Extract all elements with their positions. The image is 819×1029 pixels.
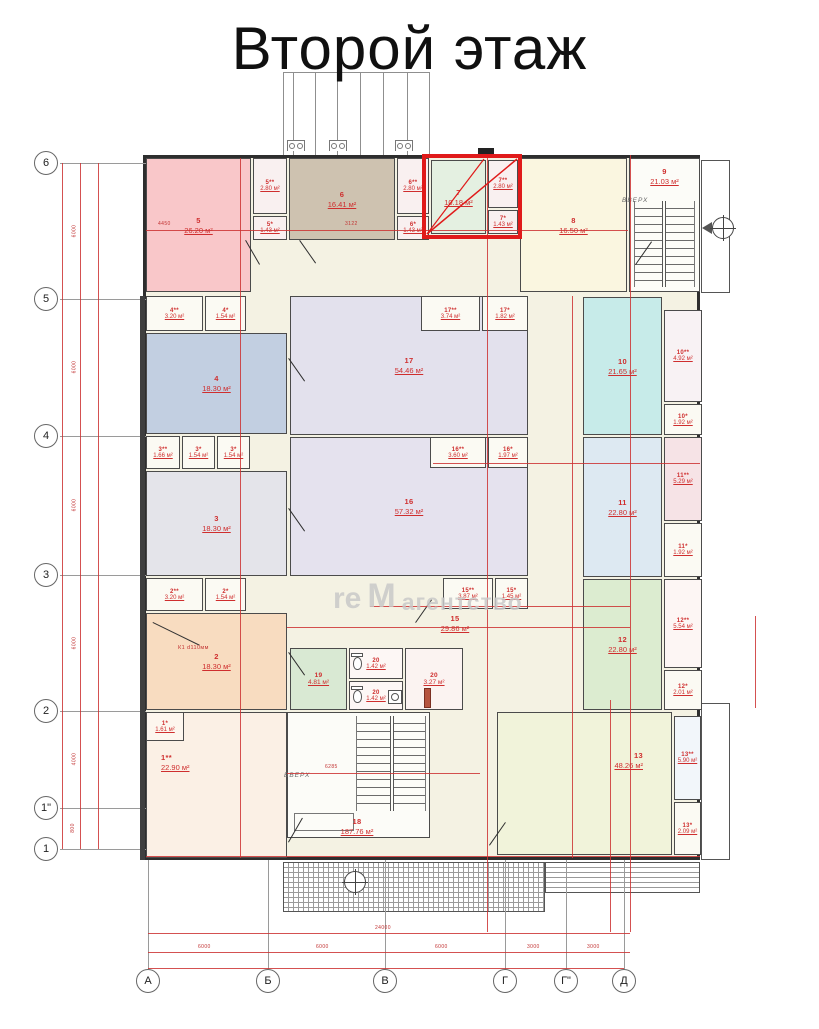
stair-stringer [662,201,666,287]
room-number: 18 [353,817,362,826]
room-area: 1.92 м² [673,420,692,426]
axis-label: 4 [43,430,49,442]
dimension-line [287,773,480,774]
dimension-label: 6000 [71,499,77,512]
dimension-line [755,616,756,708]
room-number: 10 [618,357,627,366]
axis-guide [60,711,146,712]
axis-label: 1" [41,802,51,814]
dimension-line [148,933,630,934]
dimension-line [610,700,611,932]
room-13: 1348.26 м² [497,712,672,855]
pipe-annotation: К1 d110мм [178,645,209,651]
room-area: 1.97 м² [498,453,517,459]
axis-label: Г [502,975,508,987]
dimension-line [146,230,628,231]
axis-circle-v: В [373,969,397,993]
dimension-label: 24000 [375,925,391,931]
room-10: 1021.65 м² [583,297,662,435]
room-number: 1** [161,753,172,762]
room-3s1b: 3*1.54 м² [217,436,250,469]
dimension-label: 4450 [158,221,171,227]
room-area: 3.74 м² [441,314,460,320]
room-area: 57.32 м² [395,507,424,516]
axis-label: 6 [43,157,49,169]
dimension-line [146,856,700,857]
toilet-tank-icon [351,653,363,657]
dimension-line [240,158,241,858]
room-area: 1.54 м² [189,453,208,459]
room-12s1: 12*2.01 м² [664,670,702,710]
room-area: 3.60 м² [448,453,467,459]
toilet-icon [353,657,362,670]
axis-label: 2 [43,705,49,717]
dimension-line [433,463,700,464]
axis-circle-g2: Г" [554,969,578,993]
axis-label: А [144,975,151,987]
room-2s2: 2**3.20 м² [146,578,203,611]
room-18-label: 18187.76 м² [312,810,402,842]
dimension-label: 4000 [71,753,77,766]
axis-guide [60,849,146,850]
room-area: 1.61 м² [155,727,174,733]
dimension-line [62,163,63,849]
dimension-label: 3000 [527,944,540,950]
room-area: 1.82 м² [495,314,514,320]
axis-circle-b: Б [256,969,280,993]
room-area: 18.30 м² [202,384,231,393]
room-12s2: 12**5.54 м² [664,579,702,668]
room-4s2: 4**3.20 м² [146,296,203,331]
room-area: 48.26 м² [614,761,643,770]
room-area: 22.80 м² [608,645,637,654]
chimney-icon [287,140,305,151]
axis-label: 5 [43,293,49,305]
axis-circle-a: А [136,969,160,993]
room-area: 54.46 м² [395,366,424,375]
axis-label: Д [620,975,627,987]
room-3s2: 3**1.66 м² [146,436,180,469]
axis-guide [60,436,146,437]
axis-label: Б [264,975,271,987]
room-2: 218.30 м² [146,613,287,710]
entrance-symbol-icon [344,871,366,893]
room-area: 21.65 м² [608,367,637,376]
room-11s1: 11*1.92 м² [664,523,702,577]
room-5s2: 5**2.80 м² [253,158,287,214]
axis-guide [60,808,146,809]
watermark-logo: M [367,577,395,616]
room-8: 816.50 м² [520,158,627,292]
entrance-symbol-icon [702,217,734,239]
watermark-text: re [333,582,361,616]
room-area: 2.01 м² [673,690,692,696]
room-13s2: 13**5.90 м² [674,716,701,800]
axis-circle-d: Д [612,969,636,993]
room-17s2: 17**3.74 м² [421,296,480,331]
watermark-text: агентство [402,589,523,616]
room-number: 19 [315,672,323,679]
room-area: 2.80 м² [260,186,279,192]
room-13s1: 13*2.09 м² [674,802,701,855]
dimension-line [287,627,630,628]
boiler-icon [424,688,431,708]
room-number: 4 [214,374,218,383]
room-area: 1.43 м² [260,228,279,234]
floor-plan-page: Второй этаж 526.20 м² 5**2.80 м² 5*1.43 … [0,0,819,1029]
dimension-label: 6000 [71,637,77,650]
dimension-label: 6000 [198,944,211,950]
room-number: 13 [634,751,643,760]
dimension-label: 6285 [325,764,338,770]
room-5s1: 5*1.43 м² [253,216,287,240]
room-area: 5.54 м² [673,624,692,630]
room-number: 9 [662,167,666,176]
room-19: 194.81 м² [290,648,347,710]
room-area: 1.42 м² [366,696,385,702]
dimension-label: 6000 [71,225,77,238]
room-number: 3 [214,514,218,523]
room-area: 1.92 м² [673,550,692,556]
dimension-line [630,155,631,932]
room-10s2: 10**4.92 м² [664,310,702,402]
room-area: 2.80 м² [403,186,422,192]
room-1s1: 1*1.61 м² [146,712,184,741]
vent-line [360,72,361,155]
room-11s2: 11**5.29 м² [664,437,702,521]
room-area: 2.09 м² [678,829,697,835]
room-area: 3.27 м² [423,679,444,686]
room-number: 8 [571,216,575,225]
sink-icon [388,690,402,704]
axis-label: 3 [43,569,49,581]
axis-label: 1 [43,843,49,855]
vent-line [283,72,284,155]
axis-circle-2: 2 [34,699,58,723]
room-area: 21.03 м² [650,177,679,186]
dimension-line [98,163,99,849]
axis-label: Г" [561,975,571,987]
axis-label: В [381,975,388,987]
room-number: 20 [430,672,438,679]
room-9-stairwell: 921.03 м² [629,158,700,292]
room-number: 6 [340,190,344,199]
dimension-label: 800 [70,823,76,833]
dimension-label: 6000 [316,944,329,950]
chimney-icon [395,140,413,151]
wall [140,296,145,860]
room-number: 16 [405,497,414,506]
toilet-tank-icon [351,686,363,690]
room-area: 16.41 м² [328,200,357,209]
watermark: re M агентство [333,577,523,616]
dimension-line [148,952,630,953]
room-17s1: 17*1.82 м² [482,296,528,331]
room-area: 1.43 м² [403,228,422,234]
room-number: 17 [405,356,414,365]
room-area: 4.92 м² [673,356,692,362]
highlight-diagonal [426,158,518,235]
dimension-label: 6000 [435,944,448,950]
room-number: 5 [196,216,200,225]
axis-circle-1: 1 [34,837,58,861]
stairs-up-label: ВВЕРХ [622,197,648,204]
room-area: 22.90 м² [161,763,190,772]
room-6: 616.41 м² [289,158,395,240]
room-area: 18.30 м² [202,662,231,671]
room-area: 1.54 м² [216,595,235,601]
balcony-ledge [701,703,730,860]
room-12: 1222.80 м² [583,579,662,710]
vent-line [429,72,430,155]
room-number: 12 [618,635,627,644]
highlight-box-room-7[interactable] [422,154,522,239]
exterior-steps [545,862,700,893]
dimension-label: 3000 [587,944,600,950]
axis-circle-4: 4 [34,424,58,448]
chimney-icon [329,140,347,151]
room-area: 3.20 м² [165,595,184,601]
axis-guide [60,299,146,300]
axis-circle-6: 6 [34,151,58,175]
room-number: 2 [214,652,218,661]
room-20c: 203.27 м² [405,648,463,710]
room-area: 18.30 м² [202,524,231,533]
dimension-label: 3122 [345,221,358,227]
room-area: 3.20 м² [165,314,184,320]
room-area: 29.86 м² [441,624,470,633]
axis-circle-1a: 1" [34,796,58,820]
dimension-label: 6000 [71,361,77,374]
axis-guide [60,575,146,576]
room-3: 318.30 м² [146,471,287,576]
room-4: 418.30 м² [146,333,287,434]
room-area: 1.54 м² [216,314,235,320]
room-10s1: 10*1.92 м² [664,404,702,435]
axis-guide [60,163,146,164]
room-area: 1.42 м² [366,664,385,670]
dimension-line [487,155,488,932]
vent-line [315,72,316,155]
room-number: 11 [618,498,627,507]
vent-line [383,72,384,155]
room-11: 1122.80 м² [583,437,662,577]
axis-circle-g: Г [493,969,517,993]
room-area: 5.29 м² [673,479,692,485]
room-area: 187.76 м² [341,827,374,836]
axis-circle-5: 5 [34,287,58,311]
room-3s1a: 3*1.54 м² [182,436,215,469]
room-area: 5.90 м² [678,758,697,764]
toilet-icon [353,690,362,703]
stair-stringer [390,716,394,811]
room-area: 1.66 м² [153,453,172,459]
dimension-line [572,296,573,858]
page-title: Второй этаж [0,14,819,83]
axis-circle-3: 3 [34,563,58,587]
room-area: 22.80 м² [608,508,637,517]
dimension-line [80,163,81,849]
room-area: 4.81 м² [308,679,329,686]
